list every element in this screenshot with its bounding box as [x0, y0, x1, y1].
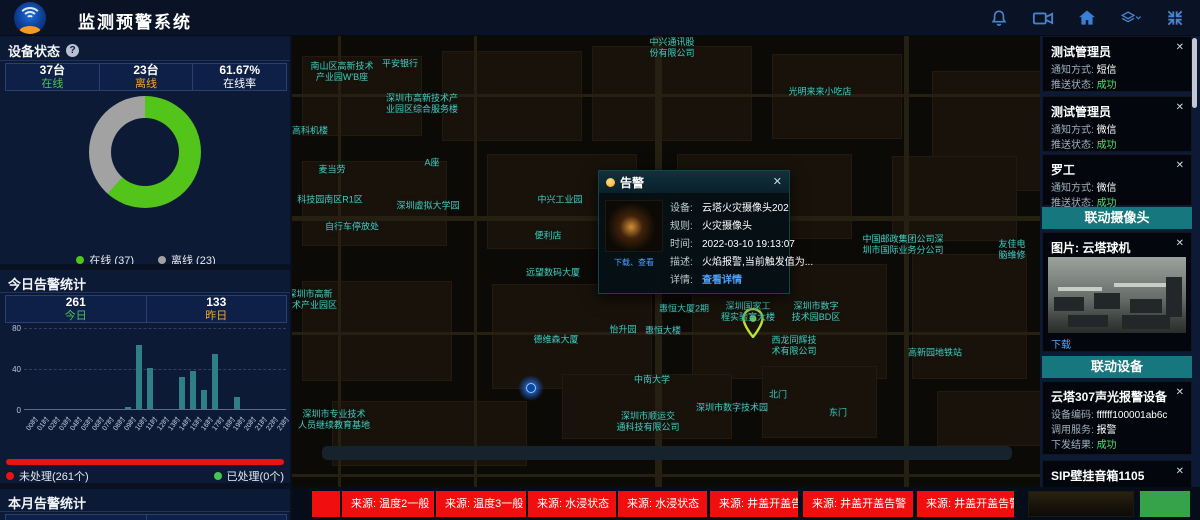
- field-label: 规则:: [670, 218, 702, 236]
- alert-popup-titlebar: 告警 ✕: [599, 171, 789, 193]
- help-icon[interactable]: ?: [66, 44, 79, 57]
- row-label: 调用服务:: [1051, 425, 1097, 436]
- ticker-alarm-item[interactable]: 来源: 温度3一般: [436, 491, 526, 517]
- field-label: 时间:: [670, 236, 702, 254]
- notification-row: 推送状态: 成功: [1051, 78, 1183, 93]
- notification-close-icon[interactable]: ✕: [1176, 160, 1184, 171]
- bar: [125, 407, 131, 409]
- map-label: 中兴通讯股 份有限公司: [649, 37, 694, 59]
- notification-card: 测试管理员✕通知方式: 微信推送状态: 成功: [1042, 96, 1192, 152]
- field-value: 火灾摄像头: [702, 218, 752, 236]
- monitoring-dashboard: 监测预警系统: [0, 0, 1200, 520]
- warning-bulb-icon: [606, 178, 615, 187]
- field-label: 描述:: [670, 254, 702, 272]
- device-row: 调用服务: 报警: [1051, 423, 1183, 438]
- notification-row: 通知方式: 微信: [1051, 181, 1183, 196]
- stat-month-2: 1146: [147, 515, 287, 520]
- fire-snapshot-image[interactable]: [605, 200, 663, 252]
- bar: [201, 390, 207, 409]
- camera-card-title: 图片: 云塔球机: [1051, 239, 1183, 256]
- map-label: 中国邮政集团公司深 圳市国际业务分公司: [862, 234, 943, 256]
- row-label: 推送状态:: [1051, 140, 1097, 151]
- alert-popup-close-icon[interactable]: ✕: [773, 177, 782, 188]
- today-alarms-title: 今日告警统计: [8, 274, 86, 293]
- map-label: 麦当劳: [318, 165, 345, 176]
- today-alarms-header: 今日告警统计: [8, 274, 86, 293]
- bar: [136, 345, 142, 409]
- snapshot-links[interactable]: 下载、查看: [605, 257, 663, 268]
- online-count: 37台: [40, 64, 65, 77]
- device-status-title: 设备状态: [8, 41, 60, 60]
- today-count: 261: [66, 296, 86, 309]
- map-label: 自行车停放处: [325, 222, 379, 233]
- map-label: 深圳市数字 技术园BD区: [792, 301, 841, 323]
- bar: [190, 371, 196, 409]
- map-label: 西龙同辉技 术有限公司: [771, 335, 816, 357]
- online-rate-label: 在线率: [223, 78, 256, 91]
- ticker-snapshot-image[interactable]: [1028, 491, 1134, 517]
- map-label: 中南大学: [634, 375, 670, 386]
- row-value: 微信: [1097, 125, 1117, 136]
- notification-close-icon[interactable]: ✕: [1176, 42, 1184, 53]
- fullscreen-icon[interactable]: [1164, 7, 1186, 29]
- stat-today: 261 今日: [6, 296, 147, 322]
- camera-snapshot-image[interactable]: [1048, 257, 1186, 333]
- field-label: 详情:: [670, 272, 702, 290]
- linked-devices-header[interactable]: 联动设备: [1042, 356, 1192, 378]
- legend-dot-icon: [158, 256, 166, 264]
- row-label: 通知方式:: [1051, 65, 1097, 76]
- row-label: 推送状态:: [1051, 80, 1097, 91]
- map-label: 惠恒大厦2期: [659, 304, 709, 315]
- notification-name: 测试管理员: [1051, 43, 1183, 60]
- camera-card: 图片: 云塔球机 ✕ 下载: [1042, 232, 1192, 352]
- map-label: 深圳市数字技术园: [696, 403, 768, 414]
- notification-row: 通知方式: 短信: [1051, 63, 1183, 78]
- notification-close-icon[interactable]: ✕: [1176, 102, 1184, 113]
- device-card: SIP壁挂音箱1105✕设备编码: 1105: [1042, 460, 1192, 487]
- app-header: 监测预警系统: [0, 0, 1200, 36]
- device-card: 云塔307声光报警设备✕设备编码: ffffff100001ab6c调用服务: …: [1042, 381, 1192, 455]
- map-label: 深圳市高新技术产 业园区综合服务楼: [386, 93, 458, 115]
- field-value: 2022-03-10 19:13:07: [702, 236, 795, 254]
- notification-row: 通知方式: 微信: [1051, 123, 1183, 138]
- header-icon-bar: [988, 0, 1186, 36]
- home-icon[interactable]: [1076, 7, 1098, 29]
- map-label: 友佳电脑维修: [998, 239, 1026, 261]
- yesterday-label: 昨日: [205, 310, 227, 323]
- map-label: 深圳市专业技术 人员继续教育基地: [298, 409, 370, 431]
- alert-field-row: 规则:火灾摄像头: [670, 218, 813, 236]
- hourly-alarm-bar-chart: 8040000时01时02时03时04时05时06时07时08时09时10时11…: [6, 322, 288, 454]
- ticker-green-image[interactable]: [1140, 491, 1190, 517]
- bar: [179, 377, 185, 409]
- offline-count: 23台: [133, 64, 158, 77]
- stat-offline: 23台 离线: [100, 64, 194, 90]
- stat-online-rate: 61.67% 在线率: [193, 64, 286, 90]
- alert-popup-fields: 设备:云塔火灾摄像头202规则:火灾摄像头时间:2022-03-10 19:13…: [670, 200, 813, 290]
- field-label: 设备:: [670, 200, 702, 218]
- row-value: ffffff100001ab6c: [1097, 410, 1168, 421]
- map-label: 科技园南区R1区: [297, 195, 363, 206]
- alert-popup-title: 告警: [620, 174, 768, 191]
- ticker-alarm-item[interactable]: 来源: 井盖开盖告警: [803, 491, 913, 517]
- map-label: 深圳国家工 程实验室大楼: [721, 301, 775, 323]
- axis-tick-label: 0: [6, 406, 21, 415]
- alarm-ticker: 来源: 温度2一般来源: 温度3一般来源: 水浸状态来源: 水浸状态来源: 井盖…: [292, 487, 1200, 520]
- axis-tick-label: 80: [6, 324, 21, 333]
- unprocessed-label: 未处理(261个): [19, 468, 89, 484]
- bell-icon[interactable]: [988, 7, 1010, 29]
- video-camera-icon[interactable]: [1032, 7, 1054, 29]
- alert-field-row: 时间:2022-03-10 19:13:07: [670, 236, 813, 254]
- map-marker-blue-dot[interactable]: [518, 375, 544, 401]
- row-value: 成功: [1097, 440, 1117, 451]
- camera-card-close-icon[interactable]: ✕: [1176, 238, 1184, 249]
- device-status-stats: 37台 在线 23台 离线 61.67% 在线率: [5, 63, 287, 91]
- row-value: 成功: [1097, 80, 1117, 91]
- yesterday-count: 133: [206, 296, 226, 309]
- device-row: 设备编码: ffffff100001ab6c: [1051, 408, 1183, 423]
- map-label: 南山区高新技术 产业园W'B座: [310, 61, 373, 83]
- row-label: 通知方式:: [1051, 125, 1097, 136]
- map[interactable]: 告警 ✕ 下载、查看 设备:云塔火灾摄像头202规则:火灾摄像头时间:2022-…: [292, 36, 1040, 487]
- ticker-alarm-item[interactable]: 来源: 水浸状态: [618, 491, 707, 517]
- row-value: 短信: [1097, 65, 1117, 76]
- device-status-donut-chart: [89, 96, 201, 208]
- download-link[interactable]: 下载: [1051, 336, 1071, 351]
- today-label: 今日: [65, 310, 87, 323]
- left-sidebar: 设备状态 ? 37台 在线 23台 离线 61.67% 在线率 在线 (37)离…: [0, 36, 292, 520]
- today-alarms-stats: 261 今日 133 昨日: [5, 295, 287, 323]
- legend-dot-icon: [76, 256, 84, 264]
- online-label: 在线: [41, 78, 63, 91]
- device-name: SIP壁挂音箱1105: [1051, 467, 1183, 484]
- bar: [234, 397, 240, 409]
- map-label: 高新园地铁站: [908, 348, 962, 359]
- alert-field-row: 详情:查看详情: [670, 272, 813, 290]
- stat-yesterday: 133 昨日: [147, 296, 287, 322]
- device-name: 云塔307声光报警设备: [1051, 388, 1183, 405]
- map-label: 中兴工业园: [537, 195, 582, 206]
- map-label: 怡升园: [609, 325, 636, 336]
- alert-field-row: 描述:火焰报警,当前触发值为...: [670, 254, 813, 272]
- row-value: 成功: [1097, 140, 1117, 151]
- right-panel: 测试管理员✕通知方式: 短信推送状态: 成功测试管理员✕通知方式: 微信推送状态…: [1042, 36, 1192, 487]
- ticker-alarm-item[interactable]: [312, 491, 340, 517]
- offline-label: 离线: [135, 78, 157, 91]
- notification-row: 推送状态: 成功: [1051, 138, 1183, 153]
- map-label: 惠恒大楼: [645, 326, 681, 337]
- bar: [212, 354, 218, 409]
- map-label: 北门: [769, 390, 787, 401]
- ticker-alarm-item[interactable]: 来源: 井盖开盖告警: [710, 491, 798, 517]
- field-value: 云塔火灾摄像头202: [702, 200, 789, 218]
- stat-online: 37台 在线: [6, 64, 100, 90]
- unprocessed-legend: 未处理(261个): [6, 468, 89, 484]
- bar: [147, 368, 153, 409]
- linked-cameras-header[interactable]: 联动摄像头: [1042, 207, 1192, 229]
- app-logo-icon: [14, 2, 46, 34]
- stat-month-1: 763: [6, 515, 147, 520]
- ticker-alarm-item[interactable]: 来源: 水浸状态: [528, 491, 616, 517]
- row-value: 微信: [1097, 183, 1117, 194]
- map-label: 深圳市顺运交 通科技有限公司: [616, 411, 679, 433]
- row-value: 报警: [1097, 425, 1117, 436]
- device-card-close-icon[interactable]: ✕: [1176, 466, 1184, 477]
- notification-name: 罗工: [1051, 161, 1183, 178]
- notification-name: 测试管理员: [1051, 103, 1183, 120]
- row-label: 下发结果:: [1051, 440, 1097, 451]
- alert-field-row: 设备:云塔火灾摄像头202: [670, 200, 813, 218]
- map-label: 平安银行: [382, 59, 418, 70]
- gridline: [24, 328, 286, 329]
- notification-card: 罗工✕通知方式: 微信推送状态: 成功: [1042, 154, 1192, 206]
- progress-legend: 未处理(261个) 已处理(0个): [6, 468, 284, 484]
- processed-label: 已处理(0个): [227, 468, 284, 484]
- map-label: 光明来来小吃店: [788, 87, 851, 98]
- map-label: 德维森大厦: [533, 335, 578, 346]
- row-label: 设备编码:: [1051, 410, 1097, 421]
- ticker-alarm-item[interactable]: 来源: 井盖开盖告警: [917, 491, 1014, 517]
- month-alarms-title: 本月告警统计: [8, 493, 86, 512]
- processed-legend: 已处理(0个): [214, 468, 284, 484]
- row-label: 通知方式:: [1051, 183, 1097, 194]
- unprocessed-progress-bar: [6, 459, 284, 465]
- red-dot-icon: [6, 472, 14, 480]
- field-value: 火焰报警,当前触发值为...: [702, 254, 813, 272]
- map-label: 深圳市高新 技术产业园区: [292, 289, 337, 311]
- gridline: [24, 369, 286, 370]
- map-label: A座: [424, 158, 439, 169]
- ticker-alarm-item[interactable]: 来源: 温度2一般: [342, 491, 434, 517]
- notification-card: 测试管理员✕通知方式: 短信推送状态: 成功: [1042, 36, 1192, 92]
- alert-popup-body: 下载、查看 设备:云塔火灾摄像头202规则:火灾摄像头时间:2022-03-10…: [599, 193, 789, 294]
- layers-icon[interactable]: [1120, 7, 1142, 29]
- device-row: 下发结果: 成功: [1051, 438, 1183, 453]
- map-label: 高科机楼: [292, 126, 328, 137]
- online-rate-value: 61.67%: [219, 64, 260, 77]
- green-dot-icon: [214, 472, 222, 480]
- device-status-header: 设备状态 ?: [8, 41, 79, 60]
- bar-plot-area: 8040000时01时02时03时04时05时06时07时08时09时10时11…: [24, 328, 286, 410]
- page-title: 监测预警系统: [78, 8, 192, 33]
- map-label: 远望数码大厦: [526, 268, 580, 279]
- month-alarms-header: 本月告警统计: [8, 493, 86, 512]
- view-details-link[interactable]: 查看详情: [702, 272, 742, 290]
- right-scrollbar[interactable]: [1192, 38, 1197, 108]
- month-alarms-stats: 763 1146: [5, 514, 287, 520]
- map-label: 东门: [829, 408, 847, 419]
- device-card-close-icon[interactable]: ✕: [1176, 387, 1184, 398]
- alert-popup: 告警 ✕ 下载、查看 设备:云塔火灾摄像头202规则:火灾摄像头时间:2022-…: [598, 170, 790, 294]
- map-label: 深圳虚拟大学园: [396, 201, 459, 212]
- map-label: 便利店: [534, 231, 561, 242]
- axis-tick-label: 40: [6, 365, 21, 374]
